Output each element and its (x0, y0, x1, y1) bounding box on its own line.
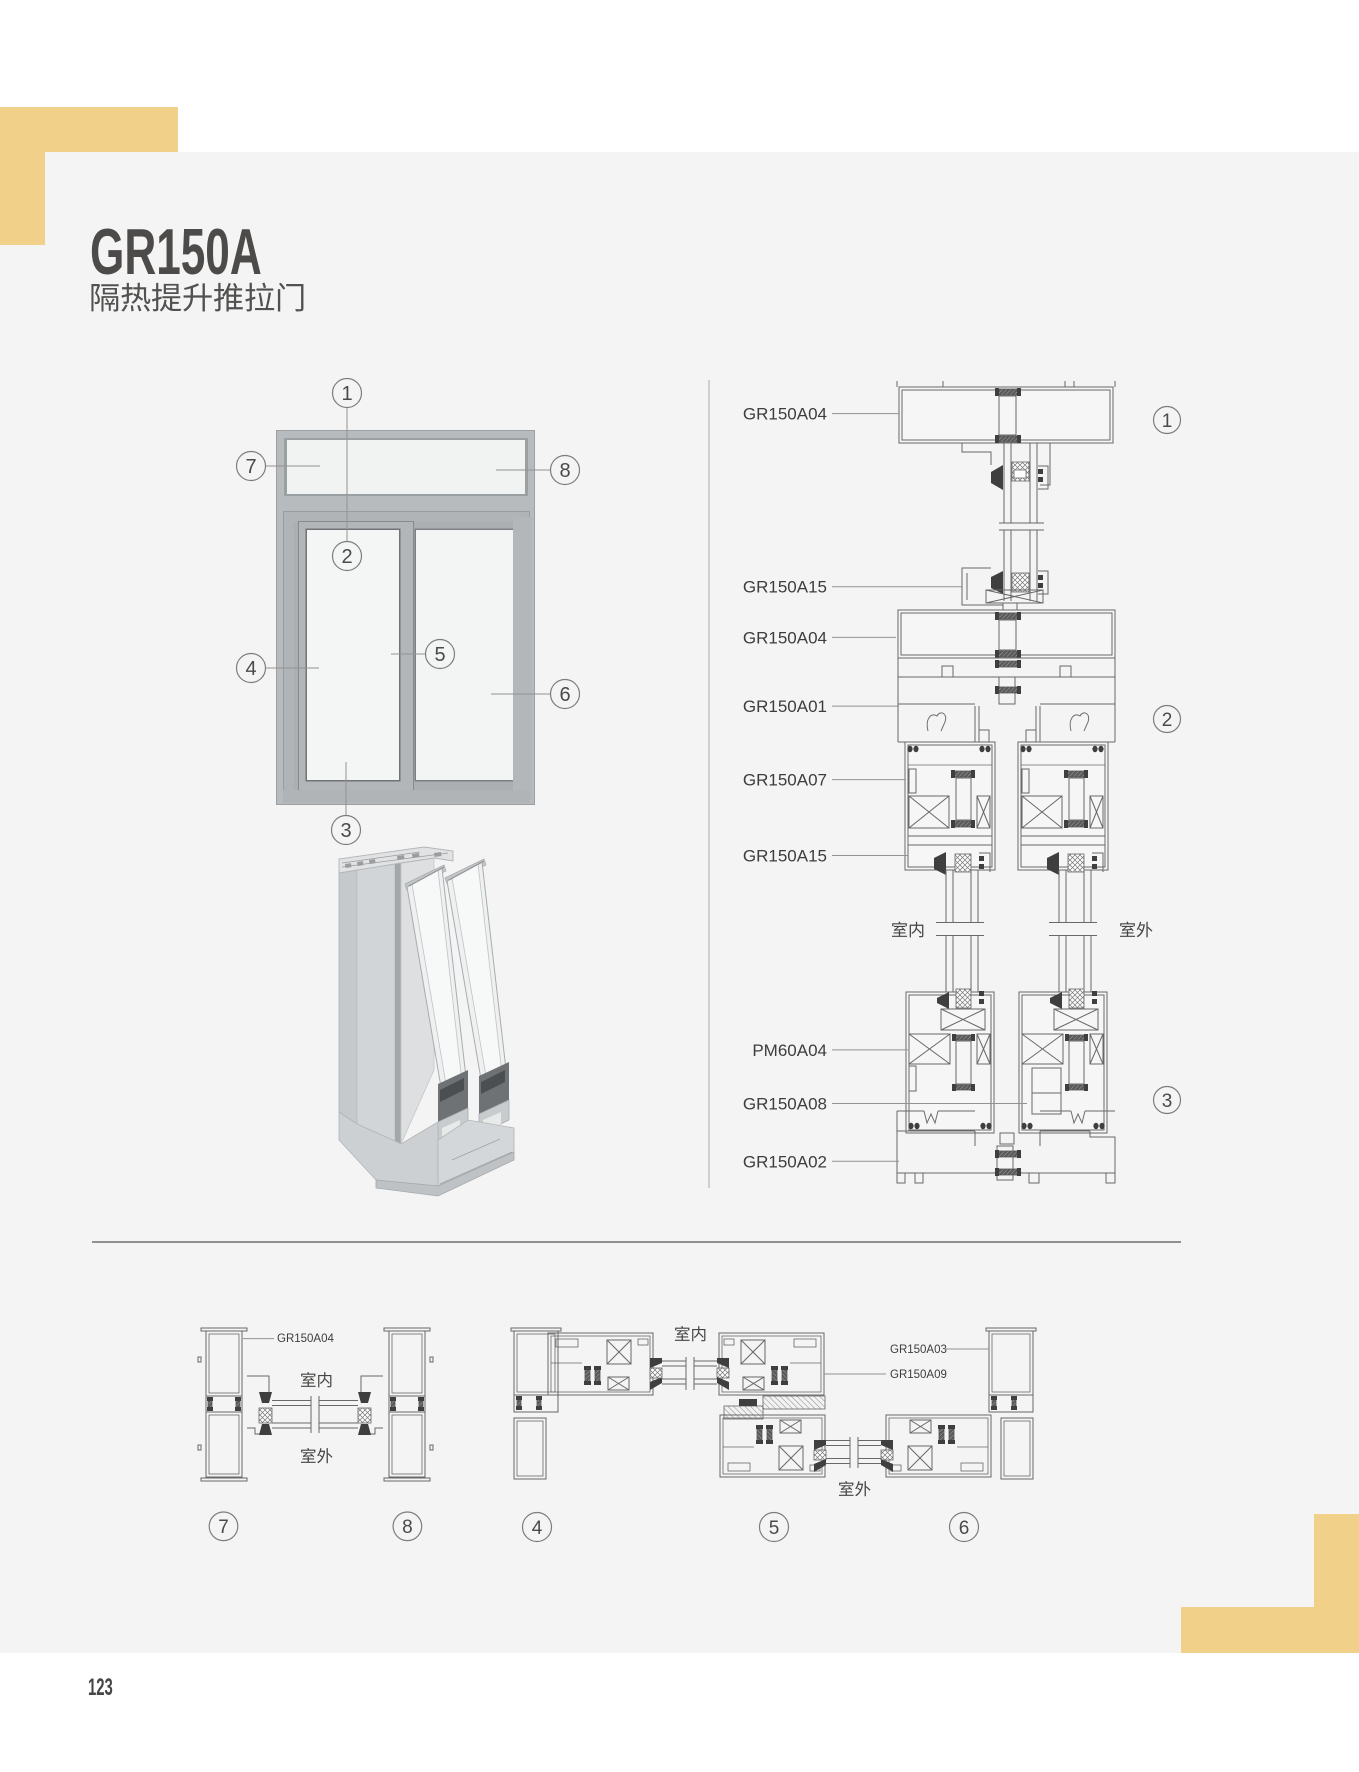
svg-text:GR150A04: GR150A04 (277, 1333, 335, 1345)
svg-text:GR150A08: GR150A08 (743, 1095, 827, 1114)
svg-text:3: 3 (1162, 1091, 1173, 1112)
svg-text:2: 2 (341, 546, 352, 568)
svg-text:1: 1 (341, 383, 352, 405)
svg-text:5: 5 (769, 1518, 780, 1539)
svg-text:2: 2 (1162, 710, 1173, 731)
svg-text:GR150A15: GR150A15 (743, 847, 827, 866)
svg-text:6: 6 (959, 1518, 970, 1539)
svg-text:4: 4 (245, 658, 256, 680)
svg-text:1: 1 (1162, 411, 1173, 432)
svg-text:GR150A09: GR150A09 (890, 1369, 947, 1381)
svg-text:GR150A04: GR150A04 (743, 628, 827, 647)
svg-text:4: 4 (532, 1518, 543, 1539)
svg-text:5: 5 (434, 644, 445, 666)
svg-text:7: 7 (218, 1517, 229, 1538)
svg-text:8: 8 (402, 1517, 413, 1538)
svg-text:GR150A04: GR150A04 (743, 405, 827, 424)
svg-text:PM60A04: PM60A04 (752, 1041, 827, 1060)
svg-text:8: 8 (559, 460, 570, 482)
svg-text:GR150A03: GR150A03 (890, 1344, 947, 1356)
svg-text:GR150A15: GR150A15 (743, 578, 827, 597)
svg-text:GR150A02: GR150A02 (743, 1152, 827, 1171)
svg-text:7: 7 (245, 456, 256, 478)
svg-text:GR150A01: GR150A01 (743, 697, 827, 716)
svg-text:3: 3 (340, 820, 351, 842)
svg-text:6: 6 (559, 684, 570, 706)
svg-text:GR150A07: GR150A07 (743, 771, 827, 790)
